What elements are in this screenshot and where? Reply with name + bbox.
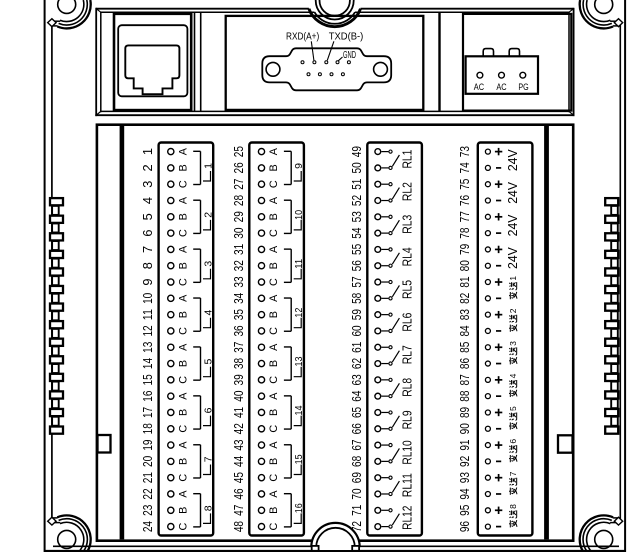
svg-text:6: 6 xyxy=(202,407,214,413)
svg-text:4: 4 xyxy=(140,197,155,204)
svg-text:25: 25 xyxy=(231,146,246,157)
svg-text:91: 91 xyxy=(457,439,472,450)
svg-text:46: 46 xyxy=(231,488,246,499)
svg-text:B: B xyxy=(178,507,190,514)
svg-text:42: 42 xyxy=(231,423,246,434)
svg-text:6: 6 xyxy=(140,230,155,237)
svg-text:PG: PG xyxy=(518,82,528,92)
svg-text:B: B xyxy=(178,164,190,171)
svg-text:12: 12 xyxy=(293,308,305,318)
svg-text:38: 38 xyxy=(231,358,246,369)
svg-text:69: 69 xyxy=(349,472,364,483)
svg-text:81: 81 xyxy=(457,276,472,287)
svg-text:44: 44 xyxy=(231,456,246,467)
svg-text:58: 58 xyxy=(349,293,364,304)
svg-text:7: 7 xyxy=(140,246,155,253)
svg-text:RL3: RL3 xyxy=(401,215,415,234)
svg-text:1: 1 xyxy=(140,148,155,155)
svg-text:14: 14 xyxy=(293,405,305,415)
svg-text:RL9: RL9 xyxy=(401,410,415,429)
svg-text:10: 10 xyxy=(140,293,155,304)
svg-text:A: A xyxy=(178,245,190,253)
svg-text:49: 49 xyxy=(349,146,364,157)
svg-text:36: 36 xyxy=(231,325,246,336)
svg-text:C: C xyxy=(268,278,280,286)
svg-text:31: 31 xyxy=(231,244,246,255)
svg-text:24V: 24V xyxy=(506,214,520,236)
svg-text:3: 3 xyxy=(202,261,214,267)
svg-text:13: 13 xyxy=(140,342,155,353)
svg-text:C: C xyxy=(178,278,190,286)
svg-text:29: 29 xyxy=(231,211,246,222)
svg-text:66: 66 xyxy=(349,423,364,434)
svg-text:B: B xyxy=(268,213,280,220)
svg-text:B: B xyxy=(178,409,190,416)
svg-text:C: C xyxy=(178,376,190,384)
svg-text:8: 8 xyxy=(202,505,214,511)
svg-text:75: 75 xyxy=(457,179,472,190)
svg-text:5: 5 xyxy=(202,358,214,364)
svg-text:18: 18 xyxy=(140,423,155,434)
svg-text:B: B xyxy=(268,507,280,514)
svg-text:71: 71 xyxy=(349,505,364,516)
svg-text:68: 68 xyxy=(349,456,364,467)
svg-text:8: 8 xyxy=(140,262,155,269)
svg-text:2: 2 xyxy=(508,308,518,313)
svg-text:C: C xyxy=(268,522,280,530)
svg-text:83: 83 xyxy=(457,309,472,320)
svg-text:63: 63 xyxy=(349,374,364,385)
svg-text:45: 45 xyxy=(231,472,246,483)
svg-text:65: 65 xyxy=(349,407,364,418)
svg-text:47: 47 xyxy=(231,505,246,516)
svg-text:43: 43 xyxy=(231,439,246,450)
svg-text:C: C xyxy=(268,474,280,482)
svg-text:RL7: RL7 xyxy=(401,345,415,364)
svg-text:87: 87 xyxy=(457,374,472,385)
svg-text:17: 17 xyxy=(140,407,155,418)
svg-text:21: 21 xyxy=(140,472,155,483)
svg-text:3: 3 xyxy=(140,181,155,188)
svg-text:84: 84 xyxy=(457,325,472,336)
svg-text:27: 27 xyxy=(231,179,246,190)
svg-text:RL8: RL8 xyxy=(401,378,415,397)
svg-text:24V: 24V xyxy=(506,181,520,203)
svg-text:A: A xyxy=(178,490,190,498)
svg-text:16: 16 xyxy=(140,391,155,402)
svg-text:1: 1 xyxy=(508,276,518,281)
svg-text:88: 88 xyxy=(457,391,472,402)
svg-text:94: 94 xyxy=(457,488,472,499)
svg-text:TXD(B-): TXD(B-) xyxy=(329,32,364,43)
svg-text:82: 82 xyxy=(457,293,472,304)
svg-text:73: 73 xyxy=(457,146,472,157)
svg-text:B: B xyxy=(268,311,280,318)
svg-text:48: 48 xyxy=(231,521,246,532)
svg-text:B: B xyxy=(268,458,280,465)
svg-text:79: 79 xyxy=(457,244,472,255)
svg-text:4: 4 xyxy=(202,310,214,316)
svg-text:A: A xyxy=(268,441,280,449)
svg-text:A: A xyxy=(178,147,190,155)
svg-text:24: 24 xyxy=(140,521,155,532)
svg-text:RL5: RL5 xyxy=(401,280,415,299)
svg-text:92: 92 xyxy=(457,456,472,467)
svg-text:B: B xyxy=(178,458,190,465)
svg-text:A: A xyxy=(268,245,280,253)
svg-text:24V: 24V xyxy=(506,149,520,171)
svg-text:67: 67 xyxy=(349,439,364,450)
svg-text:C: C xyxy=(178,229,190,237)
svg-text:14: 14 xyxy=(140,358,155,369)
svg-text:60: 60 xyxy=(349,325,364,336)
svg-text:6: 6 xyxy=(508,439,518,444)
svg-text:57: 57 xyxy=(349,276,364,287)
svg-text:95: 95 xyxy=(457,505,472,516)
svg-text:56: 56 xyxy=(349,260,364,271)
svg-text:10: 10 xyxy=(293,210,305,220)
svg-text:74: 74 xyxy=(457,162,472,173)
svg-text:2: 2 xyxy=(140,164,155,171)
svg-text:9: 9 xyxy=(140,278,155,285)
svg-text:28: 28 xyxy=(231,195,246,206)
svg-text:70: 70 xyxy=(349,488,364,499)
svg-text:A: A xyxy=(178,343,190,351)
svg-text:52: 52 xyxy=(349,195,364,206)
svg-text:C: C xyxy=(268,180,280,188)
svg-text:7: 7 xyxy=(508,471,518,476)
svg-text:9: 9 xyxy=(293,163,305,169)
svg-text:33: 33 xyxy=(231,276,246,287)
svg-text:RL11: RL11 xyxy=(401,473,415,497)
svg-text:4: 4 xyxy=(508,373,518,378)
svg-text:23: 23 xyxy=(140,505,155,516)
svg-text:11: 11 xyxy=(293,259,305,269)
svg-text:C: C xyxy=(268,376,280,384)
svg-text:C: C xyxy=(178,425,190,433)
svg-text:C: C xyxy=(178,474,190,482)
svg-text:A: A xyxy=(268,196,280,204)
svg-text:A: A xyxy=(268,343,280,351)
svg-text:B: B xyxy=(268,409,280,416)
svg-text:B: B xyxy=(178,360,190,367)
svg-text:61: 61 xyxy=(349,342,364,353)
svg-text:C: C xyxy=(268,327,280,335)
svg-text:16: 16 xyxy=(293,503,305,513)
svg-text:76: 76 xyxy=(457,195,472,206)
svg-text:51: 51 xyxy=(349,179,364,190)
svg-text:RXD(A+): RXD(A+) xyxy=(286,32,319,43)
svg-text:RL1: RL1 xyxy=(401,150,415,169)
svg-text:77: 77 xyxy=(457,211,472,222)
svg-text:A: A xyxy=(178,196,190,204)
svg-text:93: 93 xyxy=(457,472,472,483)
svg-text:5: 5 xyxy=(140,213,155,220)
svg-text:C: C xyxy=(178,522,190,530)
svg-text:35: 35 xyxy=(231,309,246,320)
svg-text:96: 96 xyxy=(457,521,472,532)
svg-text:C: C xyxy=(268,425,280,433)
svg-text:RL2: RL2 xyxy=(401,182,415,201)
svg-text:11: 11 xyxy=(140,309,155,320)
svg-text:78: 78 xyxy=(457,228,472,239)
svg-text:B: B xyxy=(268,360,280,367)
svg-text:15: 15 xyxy=(140,374,155,385)
svg-text:B: B xyxy=(268,262,280,269)
svg-text:22: 22 xyxy=(140,488,155,499)
svg-text:1: 1 xyxy=(202,163,214,169)
svg-text:13: 13 xyxy=(293,356,305,366)
svg-text:A: A xyxy=(178,441,190,449)
svg-text:A: A xyxy=(178,294,190,302)
svg-text:90: 90 xyxy=(457,423,472,434)
svg-text:AC: AC xyxy=(474,82,485,92)
svg-text:55: 55 xyxy=(349,244,364,255)
svg-text:RL6: RL6 xyxy=(401,313,415,332)
svg-text:15: 15 xyxy=(293,454,305,464)
svg-text:64: 64 xyxy=(349,391,364,402)
svg-text:39: 39 xyxy=(231,374,246,385)
svg-text:54: 54 xyxy=(349,228,364,239)
svg-text:3: 3 xyxy=(508,341,518,346)
svg-text:A: A xyxy=(268,294,280,302)
svg-text:26: 26 xyxy=(231,162,246,173)
svg-text:RL10: RL10 xyxy=(401,440,415,464)
svg-text:30: 30 xyxy=(231,228,246,239)
svg-text:A: A xyxy=(268,392,280,400)
svg-text:5: 5 xyxy=(508,406,518,411)
svg-text:B: B xyxy=(178,311,190,318)
svg-text:B: B xyxy=(178,262,190,269)
svg-text:2: 2 xyxy=(202,212,214,218)
svg-text:20: 20 xyxy=(140,456,155,467)
svg-text:C: C xyxy=(178,327,190,335)
svg-text:7: 7 xyxy=(202,456,214,462)
svg-text:RL4: RL4 xyxy=(401,247,415,266)
svg-text:A: A xyxy=(178,392,190,400)
svg-text:GND: GND xyxy=(343,50,356,61)
svg-text:62: 62 xyxy=(349,358,364,369)
svg-text:41: 41 xyxy=(231,407,246,418)
svg-text:C: C xyxy=(178,180,190,188)
svg-text:RL12: RL12 xyxy=(401,506,415,530)
svg-text:12: 12 xyxy=(140,325,155,336)
svg-text:37: 37 xyxy=(231,342,246,353)
svg-text:AC: AC xyxy=(496,82,507,92)
svg-text:A: A xyxy=(268,147,280,155)
svg-text:85: 85 xyxy=(457,342,472,353)
svg-text:40: 40 xyxy=(231,391,246,402)
svg-text:B: B xyxy=(178,213,190,220)
svg-text:34: 34 xyxy=(231,293,246,304)
svg-text:59: 59 xyxy=(349,309,364,320)
svg-text:89: 89 xyxy=(457,407,472,418)
svg-text:C: C xyxy=(268,229,280,237)
svg-text:B: B xyxy=(268,164,280,171)
svg-text:50: 50 xyxy=(349,162,364,173)
svg-text:32: 32 xyxy=(231,260,246,271)
svg-text:53: 53 xyxy=(349,211,364,222)
svg-text:80: 80 xyxy=(457,260,472,271)
svg-text:A: A xyxy=(268,490,280,498)
svg-text:24V: 24V xyxy=(506,247,520,269)
svg-text:19: 19 xyxy=(140,439,155,450)
svg-text:86: 86 xyxy=(457,358,472,369)
svg-text:8: 8 xyxy=(508,504,518,509)
